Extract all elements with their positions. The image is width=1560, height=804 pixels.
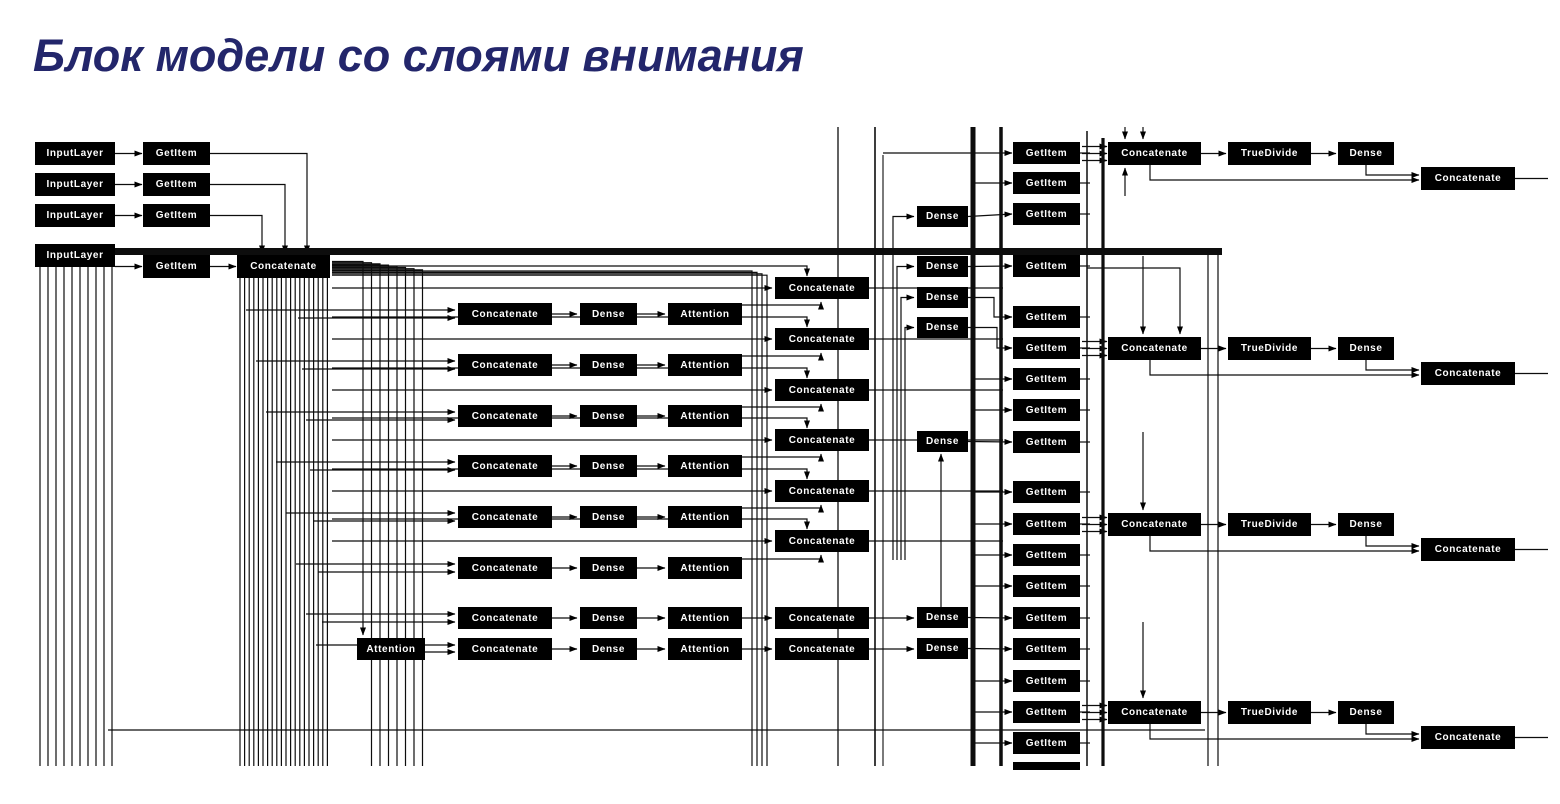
node-concat-mid-0: Concatenate — [458, 303, 552, 325]
edge-186 — [1150, 536, 1419, 551]
node-getitem-right-4: GetItem — [1013, 306, 1080, 328]
node-truedivide-2: TrueDivide — [1228, 513, 1311, 536]
node-attention-side-0: Attention — [357, 638, 425, 660]
node-dense-2-5: Dense — [917, 607, 968, 628]
node-getitem-right-2: GetItem — [1013, 203, 1080, 225]
node-concat-2-3: Concatenate — [775, 429, 869, 451]
node-attention-3: Attention — [668, 455, 742, 477]
edge-6 — [210, 216, 262, 254]
node-concat-mid-7: Concatenate — [458, 638, 552, 660]
node-getitem-right-14: GetItem — [1013, 638, 1080, 660]
node-dense-3-2: Dense — [1338, 513, 1394, 536]
edge-89 — [742, 505, 821, 508]
node-dense-mid-5: Dense — [580, 557, 637, 579]
edge-180 — [1366, 360, 1419, 370]
edge-45 — [332, 266, 397, 766]
edge-47 — [332, 269, 414, 766]
node-concat-3-3: Concatenate — [1108, 701, 1201, 724]
node-concat-main-0: Concatenate — [237, 255, 330, 278]
edge-85 — [742, 302, 821, 305]
edge-90 — [742, 555, 821, 559]
node-input-layer-2: InputLayer — [35, 204, 115, 227]
node-concat-3-0: Concatenate — [1108, 142, 1201, 165]
node-dense-2-2: Dense — [917, 287, 968, 308]
node-attention-0: Attention — [668, 303, 742, 325]
edge-48 — [332, 270, 423, 766]
node-getitem-right-16: GetItem — [1013, 701, 1080, 723]
edge-190 — [1366, 724, 1419, 734]
node-attention-4: Attention — [668, 506, 742, 528]
node-dense-2-6: Dense — [917, 638, 968, 659]
node-dense-mid-1: Dense — [580, 354, 637, 376]
edge-46 — [332, 268, 406, 767]
node-concat-4-0: Concatenate — [1421, 167, 1515, 190]
edge-42 — [332, 263, 372, 766]
node-attention-5: Attention — [668, 557, 742, 579]
node-dense-3-3: Dense — [1338, 701, 1394, 724]
node-input-layer-0: InputLayer — [35, 142, 115, 165]
node-dense-mid-3: Dense — [580, 455, 637, 477]
node-dense-3-1: Dense — [1338, 337, 1394, 360]
node-input-layer-3: InputLayer — [35, 244, 115, 267]
node-concat-mid-3: Concatenate — [458, 455, 552, 477]
node-concat-2-0: Concatenate — [775, 277, 869, 299]
model-diagram: InputLayerInputLayerInputLayerInputLayer… — [0, 0, 1560, 770]
edge-115 — [901, 298, 914, 561]
node-attention-2: Attention — [668, 405, 742, 427]
node-attention-1: Attention — [668, 354, 742, 376]
edge-191 — [1150, 724, 1419, 739]
slide: Блок модели со слоями внимания InputLaye… — [0, 0, 1560, 804]
node-attention-7: Attention — [668, 638, 742, 660]
edge-5 — [210, 185, 285, 254]
node-concat-3-2: Concatenate — [1108, 513, 1201, 536]
node-dense-mid-7: Dense — [580, 638, 637, 660]
edge-87 — [742, 404, 821, 407]
node-getitem-right-10: GetItem — [1013, 513, 1080, 535]
node-getitem-right-11: GetItem — [1013, 544, 1080, 566]
node-truedivide-3: TrueDivide — [1228, 701, 1311, 724]
node-getitem-right-1: GetItem — [1013, 172, 1080, 194]
node-dense-2-3: Dense — [917, 317, 968, 338]
node-getitem-right-13: GetItem — [1013, 607, 1080, 629]
node-concat-mid-2: Concatenate — [458, 405, 552, 427]
node-dense-2-1: Dense — [917, 256, 968, 277]
node-getitem-left-3: GetItem — [143, 255, 210, 278]
edge-113 — [893, 217, 914, 561]
edge-4 — [210, 154, 307, 254]
node-truedivide-1: TrueDivide — [1228, 337, 1311, 360]
node-concat-mid-1: Concatenate — [458, 354, 552, 376]
node-concat-4-1: Concatenate — [1421, 362, 1515, 385]
node-concat-4-2: Concatenate — [1421, 538, 1515, 561]
node-getitem-right-5: GetItem — [1013, 337, 1080, 359]
edge-175 — [1366, 165, 1419, 175]
node-getitem-right-17: GetItem — [1013, 732, 1080, 754]
edge-86 — [742, 353, 821, 356]
node-dense-mid-4: Dense — [580, 506, 637, 528]
node-dense-3-0: Dense — [1338, 142, 1394, 165]
node-concat-mid-6: Concatenate — [458, 607, 552, 629]
edge-181 — [1150, 360, 1419, 375]
edge-176 — [1150, 165, 1419, 180]
node-concat-2-6: Concatenate — [775, 607, 869, 629]
node-concat-2-4: Concatenate — [775, 480, 869, 502]
node-getitem-right-9: GetItem — [1013, 481, 1080, 503]
node-concat-mid-5: Concatenate — [458, 557, 552, 579]
node-truedivide-0: TrueDivide — [1228, 142, 1311, 165]
node-concat-2-7: Concatenate — [775, 638, 869, 660]
node-concat-mid-4: Concatenate — [458, 506, 552, 528]
edge-116 — [905, 328, 914, 561]
edge-88 — [742, 454, 821, 457]
node-getitem-right-6: GetItem — [1013, 368, 1080, 390]
node-getitem-left-1: GetItem — [143, 173, 210, 196]
node-concat-2-1: Concatenate — [775, 328, 869, 350]
node-concat-3-1: Concatenate — [1108, 337, 1201, 360]
node-concat-2-2: Concatenate — [775, 379, 869, 401]
node-dense-2-4: Dense — [917, 431, 968, 452]
edge-185 — [1366, 536, 1419, 546]
node-dense-mid-6: Dense — [580, 607, 637, 629]
node-dense-2-0: Dense — [917, 206, 968, 227]
node-attention-6: Attention — [668, 607, 742, 629]
node-dense-mid-0: Dense — [580, 303, 637, 325]
node-getitem-left-2: GetItem — [143, 204, 210, 227]
node-input-layer-1: InputLayer — [35, 173, 115, 196]
node-getitem-right-0: GetItem — [1013, 142, 1080, 164]
edge-170 — [1087, 268, 1180, 334]
node-getitem-right-7: GetItem — [1013, 399, 1080, 421]
node-getitem-partial-0 — [1013, 762, 1080, 770]
node-concat-2-5: Concatenate — [775, 530, 869, 552]
node-getitem-right-15: GetItem — [1013, 670, 1080, 692]
node-getitem-left-0: GetItem — [143, 142, 210, 165]
node-getitem-right-8: GetItem — [1013, 431, 1080, 453]
node-getitem-right-3: GetItem — [1013, 255, 1080, 277]
node-getitem-right-12: GetItem — [1013, 575, 1080, 597]
node-dense-mid-2: Dense — [580, 405, 637, 427]
node-concat-4-3: Concatenate — [1421, 726, 1515, 749]
